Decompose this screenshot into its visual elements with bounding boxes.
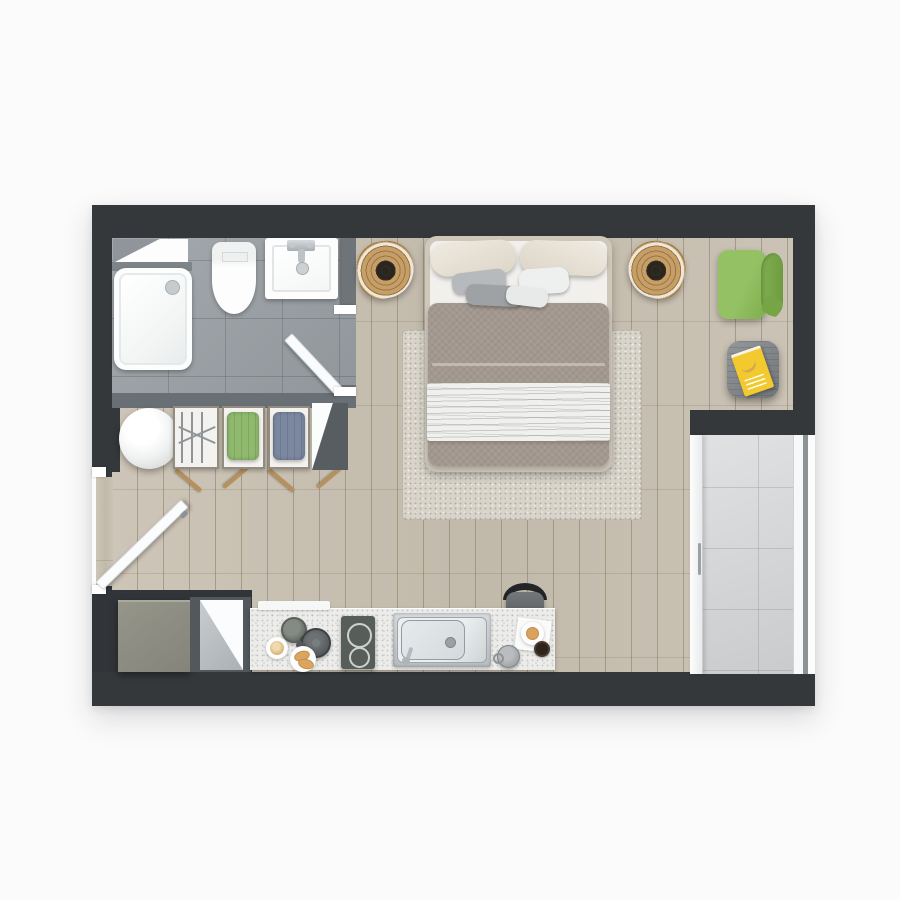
burner-ring-large [347, 623, 372, 648]
shelf-cubby-drying-rack [173, 406, 219, 469]
wall-bottom [92, 672, 815, 706]
folded-sheet-band [427, 383, 610, 441]
wall-balcony-stub [690, 410, 815, 435]
latte-plate [266, 637, 288, 659]
entry-door-stub-top [92, 467, 106, 477]
counter-shelf-board [258, 601, 330, 610]
window-sash-wedge [113, 239, 188, 263]
shower-drain-icon [165, 280, 180, 295]
two-burner-cooktop [341, 616, 375, 669]
magazine-title-lines [745, 374, 768, 392]
pastry [526, 627, 539, 640]
blue-towel-stack [273, 412, 305, 460]
balcony-outer-strip [808, 435, 815, 674]
faucet-spout [298, 249, 305, 263]
magazine-banana-graphic [738, 356, 759, 375]
grey-mug [497, 645, 520, 668]
shower-tray [114, 268, 192, 370]
burner-ring-small [349, 647, 370, 668]
bathroom-window-ajar [113, 239, 188, 263]
sliding-door-frame [690, 435, 703, 674]
sink-drain-icon [296, 262, 309, 275]
bathroom-sink [265, 238, 338, 299]
croissant-plate [290, 646, 316, 672]
bathroom-door-stop-bottom [334, 387, 356, 396]
latte-cup [270, 641, 284, 655]
closet-end-panel [312, 403, 348, 470]
kitchen-sink [393, 613, 491, 667]
wall-top [92, 205, 815, 238]
wall-right [793, 205, 815, 435]
kitchen-door-panel [200, 600, 243, 670]
kettle-lid [312, 639, 320, 647]
balcony-tile-floor [702, 435, 793, 674]
espresso-cup [534, 641, 550, 657]
green-lounge-chair-seat [718, 250, 766, 319]
wall-left-upper [92, 205, 112, 477]
kitchen-faucet-base [402, 657, 410, 665]
mug-handle [493, 653, 504, 664]
bathroom-door-stop-top [334, 305, 356, 314]
panel-mirror-wedge [312, 403, 348, 470]
kitchen-cabinet [118, 600, 190, 672]
toilet-flush-buttons [222, 252, 248, 262]
green-towel-stack [227, 412, 259, 460]
floorplan-scene [0, 0, 900, 900]
bathroom-wall-right-upper [340, 238, 356, 308]
round-side-table [119, 408, 179, 469]
door-panel-wedge [200, 600, 243, 670]
duvet-fold [432, 363, 605, 366]
toilet [212, 242, 256, 314]
kitchen-sink-drain-icon [445, 637, 456, 648]
sliding-door-handle [698, 543, 701, 575]
